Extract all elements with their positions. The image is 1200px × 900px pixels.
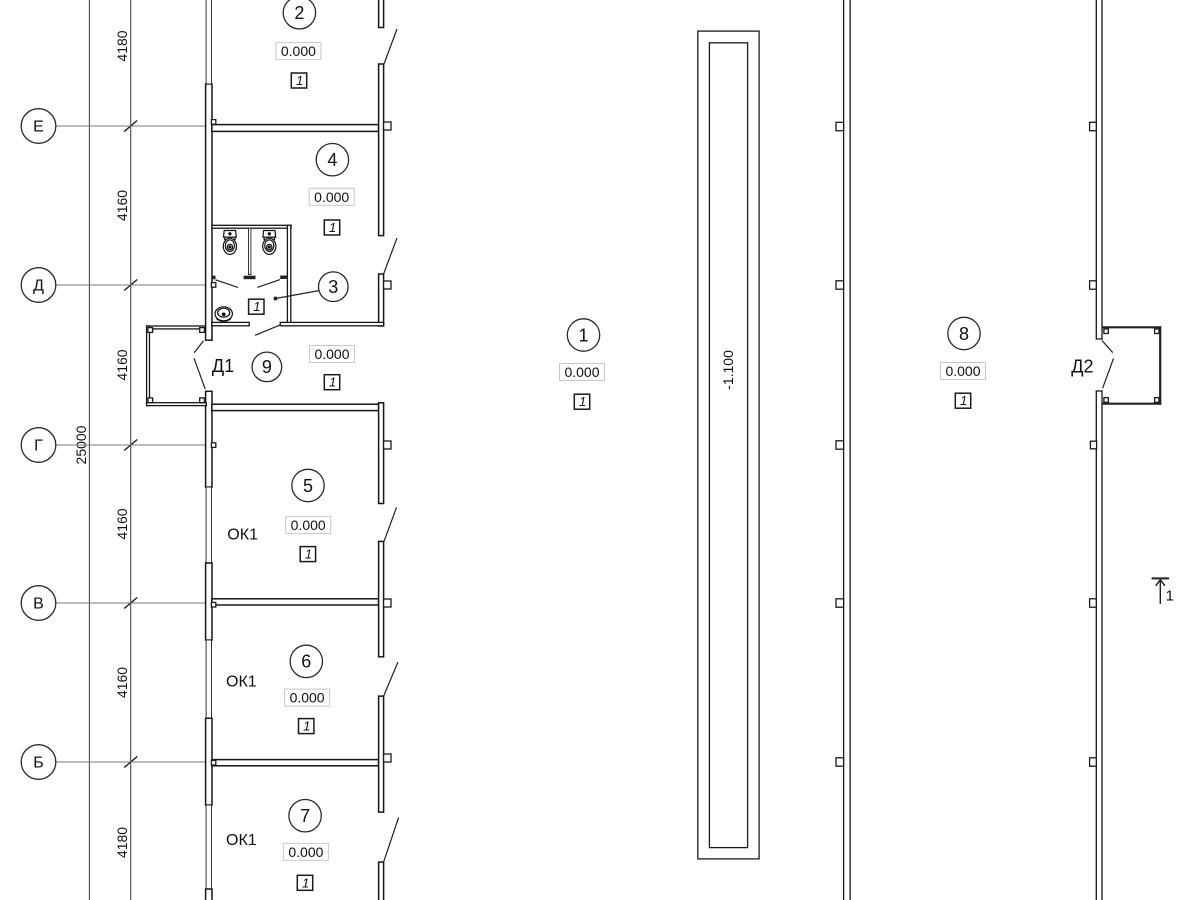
svg-text:Г: Г — [34, 438, 43, 455]
svg-text:0.000: 0.000 — [314, 189, 349, 205]
svg-text:2: 2 — [294, 3, 304, 23]
svg-text:0.000: 0.000 — [288, 844, 323, 860]
svg-text:ОК1: ОК1 — [226, 673, 257, 690]
svg-text:Е: Е — [33, 119, 44, 136]
svg-text:1: 1 — [303, 719, 310, 734]
svg-text:1: 1 — [296, 73, 303, 88]
svg-text:0.000: 0.000 — [290, 690, 325, 706]
svg-text:1: 1 — [329, 375, 336, 390]
svg-text:ОК1: ОК1 — [226, 832, 257, 849]
svg-text:4180: 4180 — [114, 30, 130, 61]
svg-text:1: 1 — [305, 547, 312, 562]
svg-text:1: 1 — [302, 875, 309, 890]
svg-text:4160: 4160 — [114, 508, 130, 539]
svg-text:Б: Б — [33, 755, 44, 772]
svg-text:4160: 4160 — [114, 349, 130, 380]
svg-text:7: 7 — [300, 806, 310, 826]
svg-text:4180: 4180 — [114, 827, 130, 858]
svg-text:0.000: 0.000 — [564, 364, 599, 380]
svg-text:ОК1: ОК1 — [227, 526, 258, 543]
svg-text:0.000: 0.000 — [945, 363, 980, 379]
svg-text:5: 5 — [303, 476, 313, 496]
svg-text:1: 1 — [329, 220, 336, 235]
svg-text:1: 1 — [1166, 588, 1174, 605]
svg-text:0.000: 0.000 — [314, 346, 349, 362]
svg-text:1: 1 — [253, 299, 260, 314]
svg-text:4: 4 — [327, 150, 337, 170]
svg-text:Д: Д — [33, 278, 44, 295]
svg-text:1: 1 — [960, 393, 967, 408]
svg-text:3: 3 — [328, 277, 338, 297]
svg-text:0.000: 0.000 — [291, 517, 326, 533]
svg-text:9: 9 — [262, 357, 272, 377]
svg-text:Д2: Д2 — [1071, 356, 1093, 376]
svg-text:В: В — [33, 596, 44, 613]
svg-text:1: 1 — [579, 394, 586, 409]
svg-text:4160: 4160 — [114, 667, 130, 698]
svg-text:1: 1 — [578, 325, 588, 345]
svg-text:0.000: 0.000 — [281, 43, 316, 59]
svg-text:6: 6 — [301, 652, 311, 672]
svg-text:-1.100: -1.100 — [720, 350, 736, 390]
svg-text:4160: 4160 — [114, 190, 130, 221]
svg-text:8: 8 — [959, 324, 969, 344]
svg-text:Д1: Д1 — [212, 356, 234, 376]
